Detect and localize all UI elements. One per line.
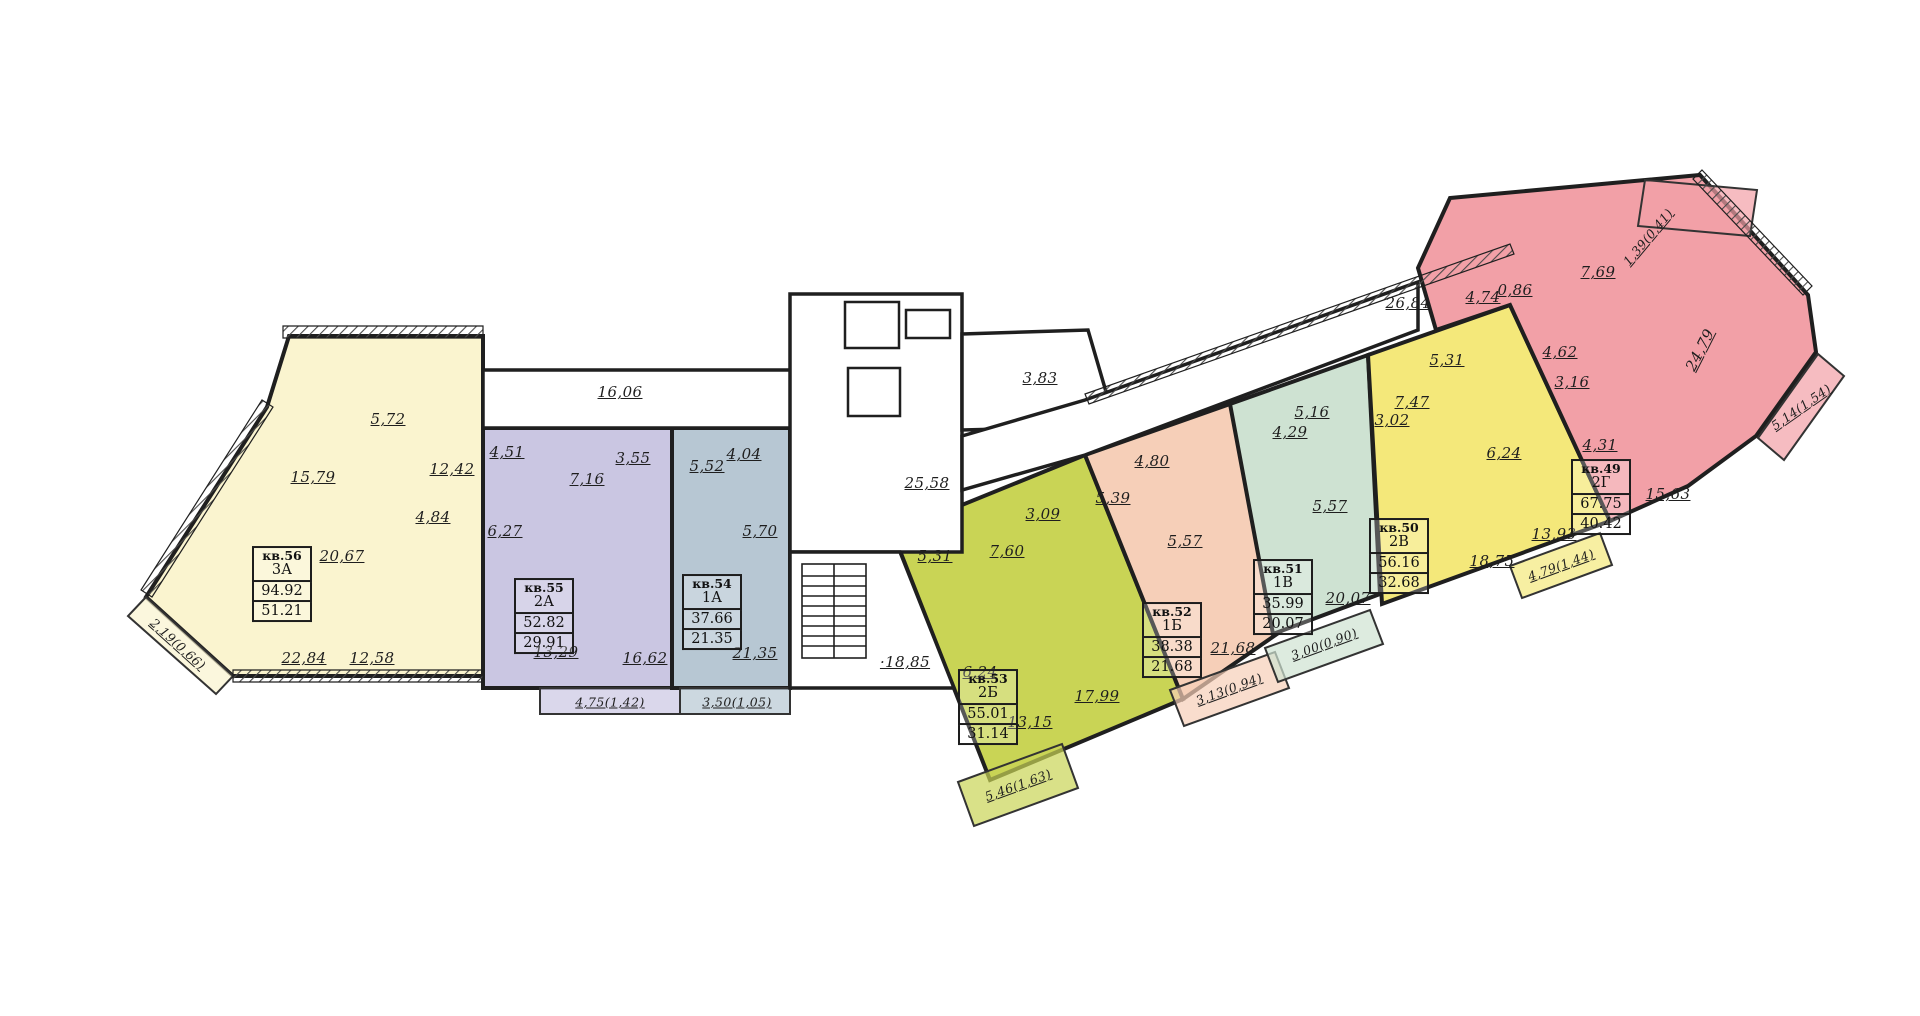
apartment-area-54 [672,428,790,688]
apartment-area-55 [483,428,672,688]
apartments-layer [128,175,1844,826]
floor-plan: 15,795,7212,424,8420,6722,8412,582,19(0,… [0,0,1920,1016]
balcony-area-54 [680,688,790,714]
stair-core-area [790,294,962,552]
corridor-area [483,370,805,428]
balcony-area-55 [540,688,680,714]
floor-plan-drawing [0,0,1920,1016]
